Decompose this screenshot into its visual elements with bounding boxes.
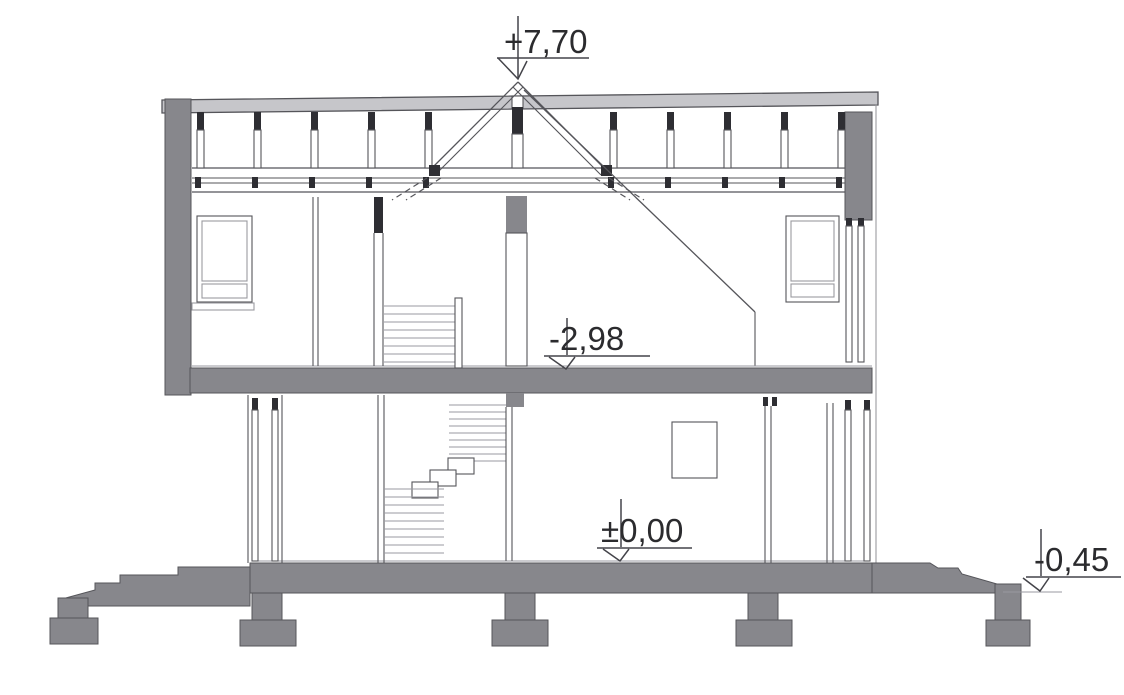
attic-right-window (786, 216, 839, 302)
attic-left-window (192, 216, 254, 310)
central-pillar (506, 196, 527, 366)
right-footing (986, 620, 1030, 646)
terrain-level-label: -0,45 (1034, 541, 1109, 578)
foundation (50, 563, 1062, 646)
connector-plate-right (601, 165, 612, 176)
level-marker-ground-floor: ±0,00 (597, 499, 692, 561)
left-foundation-wall (58, 598, 88, 620)
ground-slab (250, 563, 872, 593)
left-footing (50, 618, 98, 644)
sloped-ceiling (524, 90, 755, 312)
foundation-piers (240, 593, 792, 646)
right-partition (763, 397, 777, 563)
attic-floor-level-label: -2,98 (549, 320, 624, 357)
king-post (512, 96, 523, 168)
newel-post (455, 298, 462, 368)
wall-opening (672, 422, 717, 478)
attic-level (190, 196, 872, 407)
attic-stair-balustrade (384, 298, 462, 368)
connector-plate-left (429, 165, 440, 176)
right-slab-band (872, 563, 997, 593)
level-marker-attic-floor: -2,98 (544, 318, 650, 369)
right-gable-window (846, 218, 864, 362)
ground-staircase (384, 405, 506, 553)
right-wall-top (845, 112, 872, 220)
entrance-door (248, 395, 282, 563)
section-drawing: +7,70 -2,98 ±0,00 -0,45 (0, 0, 1124, 695)
ground-floor-level-label: ±0,00 (601, 512, 683, 549)
left-steps (62, 567, 250, 606)
ground-level (248, 395, 870, 563)
level-marker-ridge: +7,70 (497, 16, 589, 79)
level-marker-terrain: -0,45 (1023, 529, 1121, 591)
attic-floor-slab (190, 368, 872, 393)
right-foundation-wall (995, 584, 1021, 622)
left-gable-wall (165, 99, 191, 395)
attic-door-frame (374, 197, 383, 366)
stair-trimmer (506, 393, 524, 407)
ground-right-window (827, 400, 870, 563)
section-canvas: +7,70 -2,98 ±0,00 -0,45 (0, 0, 1124, 695)
ridge-level-label: +7,70 (504, 23, 588, 60)
